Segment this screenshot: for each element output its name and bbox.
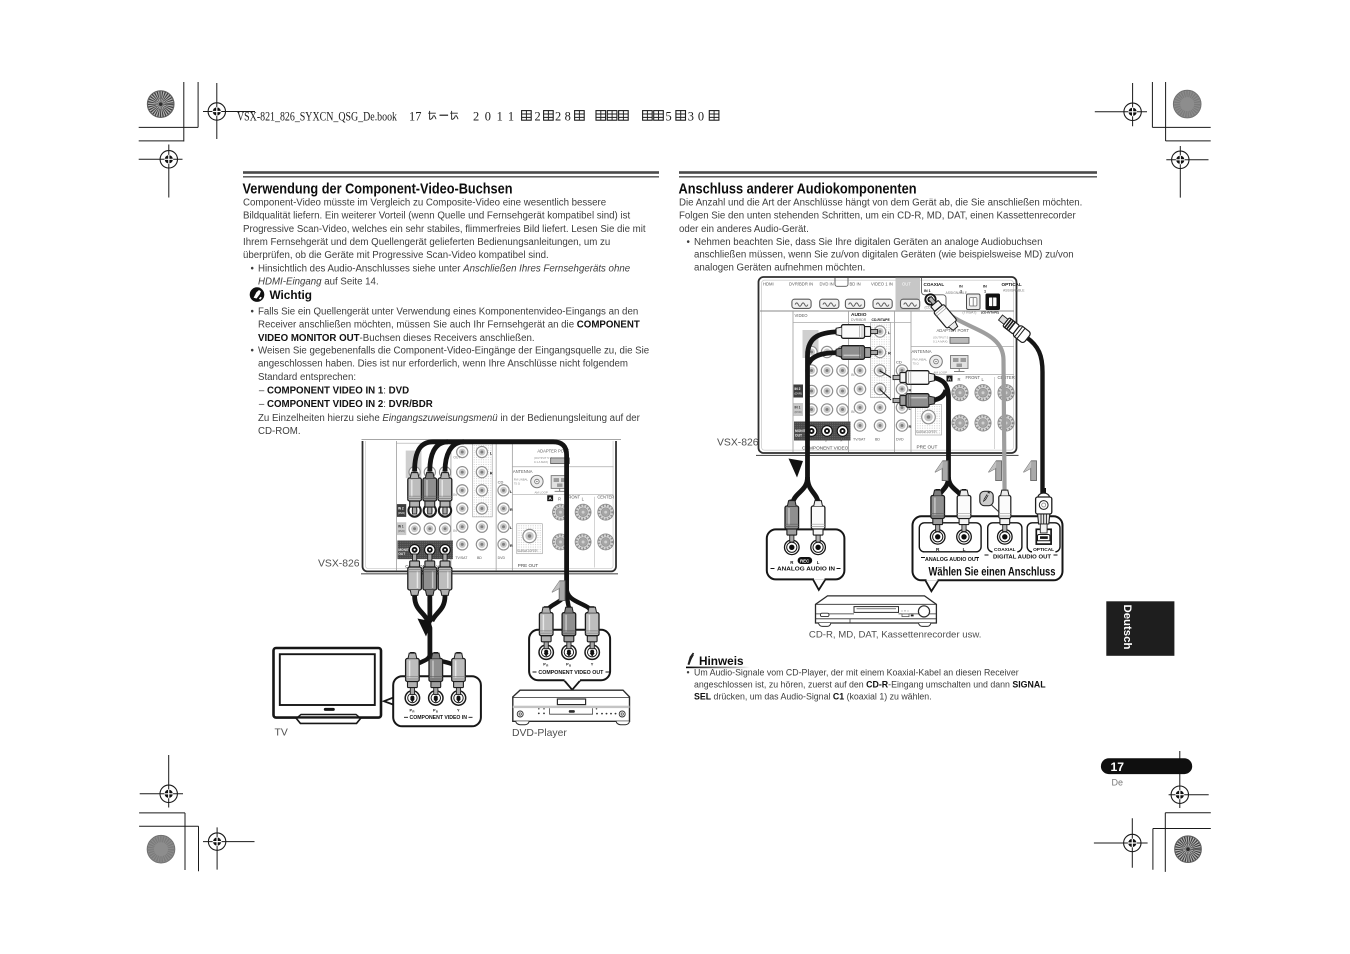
svg-text:28: 28	[555, 109, 574, 123]
svg-text:Zu Einzelheiten hierzu siehe E: Zu Einzelheiten hierzu siehe Eingangszuw…	[258, 413, 641, 424]
svg-text:VSX-821_826_SYXCN_QSG_De.book: VSX-821_826_SYXCN_QSG_De.book	[237, 109, 398, 123]
svg-text:30: 30	[688, 109, 708, 123]
svg-text:R: R	[936, 547, 940, 552]
svg-text:2: 2	[535, 109, 541, 123]
svg-text:angeschlossen ist, zu hören, z: angeschlossen ist, zu hören, zuerst auf …	[694, 680, 1046, 690]
svg-text:SEL drücken, um das Audio-Sign: SEL drücken, um das Audio-Signal C1 (koa…	[694, 691, 932, 701]
svg-text:Ihrem Fernsehgerät und dem Que: Ihrem Fernsehgerät und dem Quellengerät …	[243, 237, 610, 248]
svg-text:OPTICAL: OPTICAL	[1033, 547, 1054, 553]
svg-text:VSX-826: VSX-826	[717, 438, 759, 449]
svg-text:Y: Y	[591, 662, 594, 667]
svg-text:angeschlossen haben. Dies ist: angeschlossen haben. Dies ist nur erford…	[258, 359, 628, 370]
svg-text:•: •	[251, 263, 255, 274]
svg-text:ANALOG AUDIO OUT: ANALOG AUDIO OUT	[925, 557, 980, 563]
svg-text:COMPONENT VIDEO IN: COMPONENT VIDEO IN	[410, 715, 468, 721]
svg-text:Component-Video müsste im Verg: Component-Video müsste im Vergleich zu C…	[243, 197, 606, 208]
svg-text:COAXIAL: COAXIAL	[994, 547, 1016, 553]
svg-text:Hinweis: Hinweis	[699, 654, 744, 668]
svg-text:CD-ROM.: CD-ROM.	[258, 426, 301, 437]
svg-text:Progressive Scan-Video, welche: Progressive Scan-Video, welches ein sehr…	[243, 224, 646, 235]
svg-text:HDMI-Eingang auf Seite 14.: HDMI-Eingang auf Seite 14.	[258, 277, 379, 288]
svg-text:REC: REC	[800, 558, 810, 563]
svg-text:analogen Geräten aufnehmen möc: analogen Geräten aufnehmen möchten.	[694, 263, 865, 274]
svg-text:DVD-Player: DVD-Player	[512, 728, 567, 739]
svg-text:Receiver anschließen möchten,: Receiver anschließen möchten, müssen Sie…	[258, 320, 640, 331]
svg-text:Falls Sie ein Quellengerät unt: Falls Sie ein Quellengerät unter Verwend…	[258, 306, 638, 317]
svg-text:– COMPONENT VIDEO IN 1: DVD: – COMPONENT VIDEO IN 1: DVD	[259, 385, 409, 396]
svg-text:17: 17	[1111, 760, 1125, 774]
svg-text:Y: Y	[457, 707, 460, 712]
svg-text:17: 17	[409, 109, 421, 123]
svg-text:Weisen Sie gegebenenfalls die: Weisen Sie gegebenenfalls die Component-…	[258, 346, 649, 357]
svg-text:Um Audio-Signale vom CD-Player: Um Audio-Signale vom CD-Player, der mit …	[694, 668, 1019, 678]
svg-text:Wählen Sie einen Anschluss: Wählen Sie einen Anschluss	[929, 565, 1056, 579]
svg-text:VIDEO MONITOR OUT-Buchsen dies: VIDEO MONITOR OUT-Buchsen dieses Receive…	[258, 333, 535, 344]
svg-text:Bildqualität liefern. Ein weit: Bildqualität liefern. Ein weiterer Vorte…	[243, 211, 630, 222]
svg-text:•: •	[251, 346, 255, 357]
svg-text:ANALOG AUDIO IN: ANALOG AUDIO IN	[777, 567, 835, 573]
svg-text:Deutsch: Deutsch	[1121, 605, 1133, 650]
svg-text:Hinsichtlich des Audio-Anschlu: Hinsichtlich des Audio-Anschlusses siehe…	[258, 263, 631, 274]
svg-text:L: L	[817, 560, 820, 565]
svg-text:CD-R, MD, DAT, Kassettenrecord: CD-R, MD, DAT, Kassettenrecorder usw.	[809, 630, 982, 641]
svg-text:Folgen Sie den unten stehenden: Folgen Sie den unten stehenden Schritten…	[679, 211, 1076, 222]
svg-text:TV: TV	[275, 727, 288, 738]
svg-text:2011: 2011	[473, 109, 520, 123]
svg-text:COMPONENT VIDEO OUT: COMPONENT VIDEO OUT	[538, 670, 604, 676]
svg-text:VSX-826: VSX-826	[318, 559, 360, 570]
svg-text:oder ein anderes Audio-Gerät.: oder ein anderes Audio-Gerät.	[679, 224, 809, 235]
svg-text:überprüfen, ob die Geräte mit: überprüfen, ob die Geräte mit Progressiv…	[243, 250, 549, 261]
svg-text:Standard entsprechen:: Standard entsprechen:	[258, 372, 356, 383]
svg-text:De: De	[1112, 778, 1124, 788]
svg-text:DIGITAL AUDIO OUT: DIGITAL AUDIO OUT	[993, 554, 1052, 560]
svg-text:•: •	[687, 668, 690, 678]
svg-text:Verwendung der Component-Video: Verwendung der Component-Video-Buchsen	[243, 182, 513, 198]
svg-text:•: •	[251, 306, 255, 317]
svg-text:B: B	[436, 709, 438, 713]
svg-text:B: B	[569, 664, 571, 668]
svg-text:Wichtig: Wichtig	[270, 288, 313, 302]
svg-text:anschließen müssen, wenn Sie z: anschließen müssen, wenn Sie zu/von digi…	[694, 250, 1074, 261]
svg-text:5: 5	[666, 109, 672, 123]
svg-text:Anschluss anderer Audiokompone: Anschluss anderer Audiokomponenten	[679, 182, 917, 198]
svg-text:•: •	[687, 237, 691, 248]
svg-text:Die Anzahl und die Art der Ans: Die Anzahl und die Art der Anschlüsse hä…	[679, 197, 1082, 208]
svg-text:– COMPONENT VIDEO IN 2: DVR/BD: – COMPONENT VIDEO IN 2: DVR/BDR	[259, 399, 433, 410]
svg-text:L: L	[963, 547, 966, 552]
svg-text:Nehmen beachten Sie, dass Sie: Nehmen beachten Sie, dass Sie Ihre digit…	[694, 237, 1042, 248]
